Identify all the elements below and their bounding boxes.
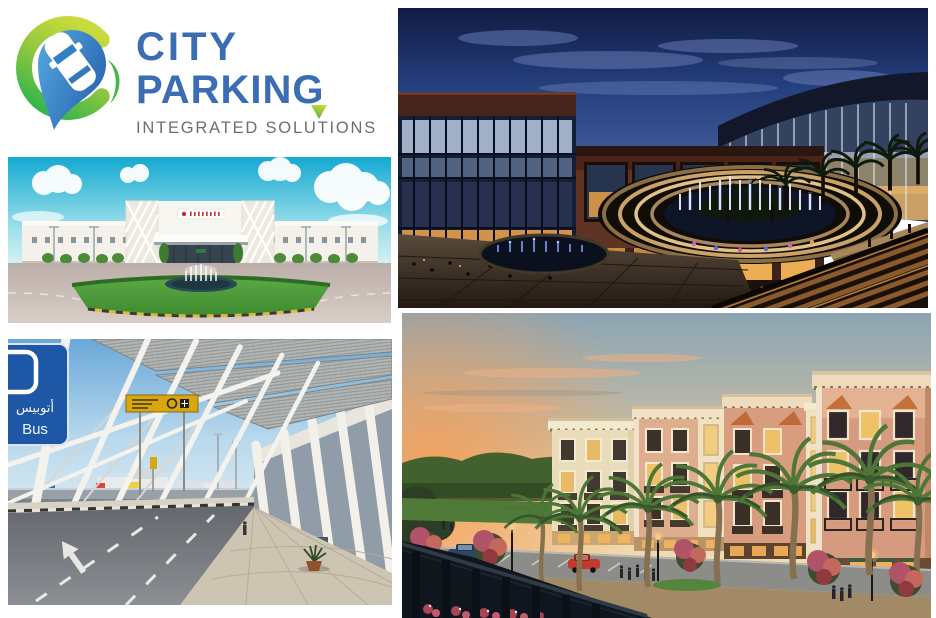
photo-residential-complex <box>402 313 931 618</box>
lattice-tower-right <box>242 201 274 263</box>
city-parking-logo: CITY PARKING INTEGRATED SOLUTIONS <box>14 6 336 150</box>
logo-pin-icon <box>14 8 130 144</box>
logo-leaf <box>108 60 120 104</box>
lattice-tower-left <box>126 201 158 263</box>
logo-g-pin-accent <box>310 105 328 120</box>
logo-word-parking: PARKING <box>136 69 377 112</box>
logo-word-city: CITY <box>136 26 377 69</box>
bus-sign-english-text: Bus <box>22 421 48 438</box>
hospital-sign <box>178 209 224 219</box>
photo-airport-terminal: أتوبيس Bus <box>8 339 392 605</box>
photo-mall-plaza-night <box>398 8 928 308</box>
photo-hospital-building <box>8 157 391 323</box>
logo-tagline: INTEGRATED SOLUTIONS <box>136 119 377 138</box>
bus-sign-arabic-text: أتوبيس <box>16 399 54 416</box>
collage-canvas: CITY PARKING INTEGRATED SOLUTIONS <box>0 0 936 618</box>
bus-sign: أتوبيس Bus <box>8 344 68 445</box>
mall-left-pond <box>480 235 608 273</box>
